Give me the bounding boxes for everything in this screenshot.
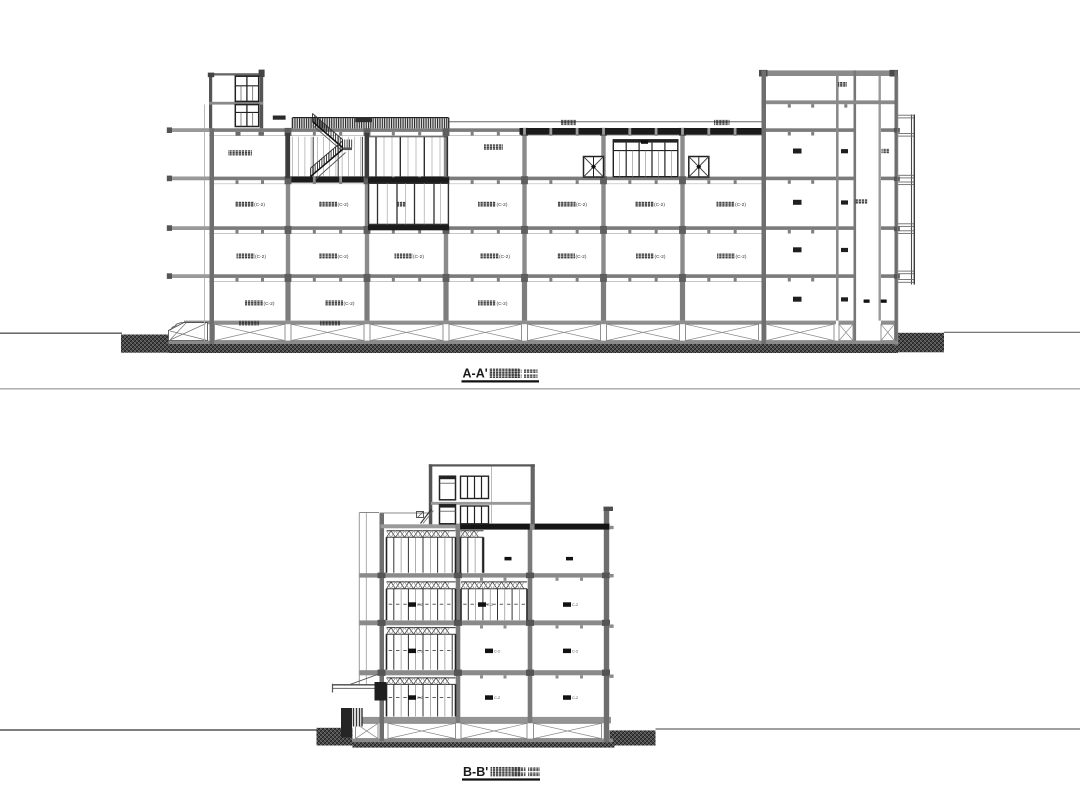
svg-text:(C-2): (C-2) <box>735 202 746 208</box>
svg-text:C-2: C-2 <box>572 603 578 607</box>
svg-text:(C-2): (C-2) <box>338 202 349 208</box>
svg-text:(C-2): (C-2) <box>497 301 508 307</box>
svg-text:(C-2): (C-2) <box>255 254 266 260</box>
svg-text:C-2: C-2 <box>487 603 493 607</box>
svg-text:(C-2): (C-2) <box>344 301 355 307</box>
svg-text:C-2: C-2 <box>417 649 423 653</box>
svg-text:(C-2): (C-2) <box>264 301 275 307</box>
svg-text:(C-2): (C-2) <box>654 202 665 208</box>
svg-text:(C-2): (C-2) <box>254 202 265 208</box>
svg-text:C-2: C-2 <box>417 696 423 700</box>
svg-text:(C-2): (C-2) <box>576 254 587 260</box>
svg-text:B-B': B-B' <box>463 765 488 779</box>
svg-text:(C-2): (C-2) <box>497 202 508 208</box>
svg-text:C-2: C-2 <box>417 603 423 607</box>
svg-text:C-2: C-2 <box>494 696 500 700</box>
svg-text:(C-2): (C-2) <box>338 254 349 260</box>
svg-text:(C-2): (C-2) <box>576 202 587 208</box>
svg-text:C-2: C-2 <box>572 649 578 653</box>
svg-text:(C-2): (C-2) <box>499 254 510 260</box>
svg-text:C-2: C-2 <box>572 696 578 700</box>
svg-text:(C-2): (C-2) <box>736 254 747 260</box>
svg-text:(C-2): (C-2) <box>413 254 424 260</box>
svg-text:A-A': A-A' <box>463 366 488 380</box>
svg-text:C-2: C-2 <box>494 649 500 653</box>
svg-text:(C-2): (C-2) <box>655 254 666 260</box>
